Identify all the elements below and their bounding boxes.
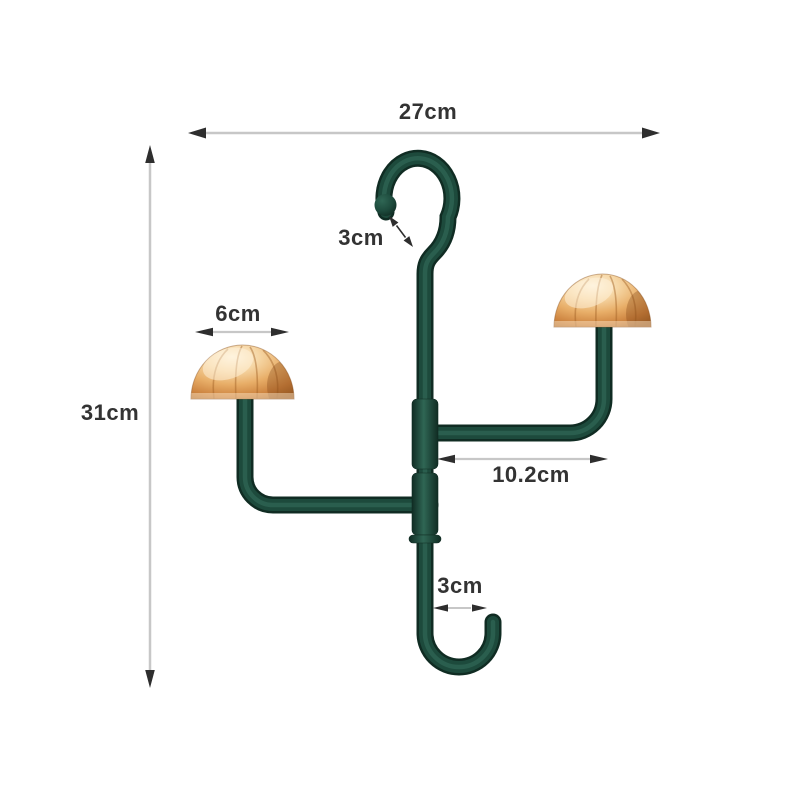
left-arm-tube xyxy=(245,391,430,505)
bottom-hook-dimension-arrow xyxy=(433,604,487,611)
top-hook-dimension-label: 3cm xyxy=(338,225,384,251)
width-dimension-label: 27cm xyxy=(399,99,457,125)
cap-width-dimension-label: 6cm xyxy=(215,301,261,327)
bottom-hook-dimension-label: 3cm xyxy=(437,573,483,599)
right-arm-tube xyxy=(430,322,604,433)
top-hook-dimension-arrow xyxy=(389,216,413,247)
width-dimension-arrow xyxy=(188,128,660,139)
arm-length-dimension-label: 10.2cm xyxy=(492,462,570,488)
cap-width-dimension-arrow xyxy=(195,328,289,337)
height-dimension-label: 31cm xyxy=(81,400,139,426)
pole-collar-ring xyxy=(409,535,441,543)
product-dimension-diagram: 27cm 31cm 3cm 6cm 10.2cm 3cm xyxy=(0,0,800,800)
hook-ball-tip xyxy=(375,194,397,216)
height-dimension-arrow xyxy=(145,145,155,688)
